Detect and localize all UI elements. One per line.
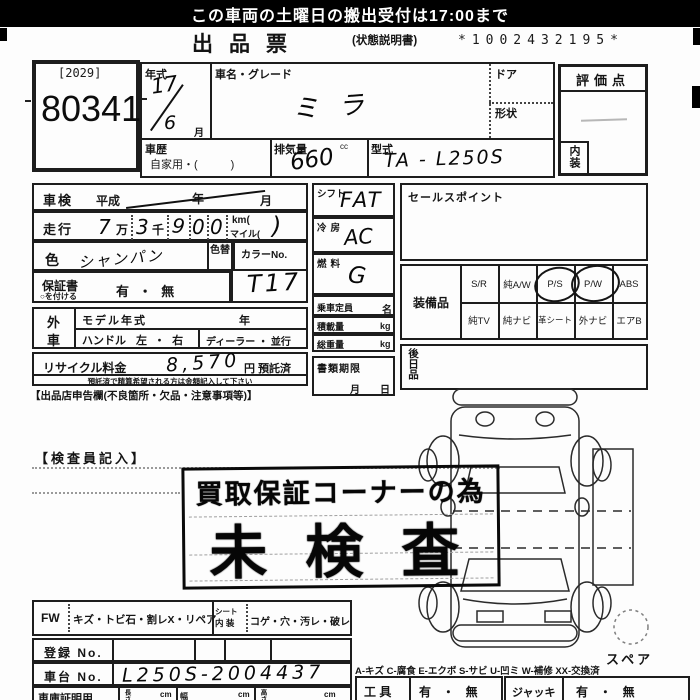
shape-label: 形状 [495, 105, 517, 121]
ac-value: AC [343, 224, 374, 250]
docs-day-label: 日 [380, 381, 390, 396]
equip-aw: 純A/W [498, 266, 536, 302]
mileage-sen: 3 [136, 215, 149, 239]
sales-point-box: セールスポイント [400, 183, 648, 261]
mileage-paren: ) [272, 212, 281, 240]
color-no-label: カラーNo. [241, 246, 287, 261]
docs-deadline-cell: 書類期限 月 日 [312, 356, 395, 396]
divider [489, 64, 491, 138]
warranty-note: ○を付ける [40, 291, 77, 302]
divider [489, 102, 553, 104]
color-label: 色 [45, 250, 59, 270]
jack-box: ジャッキ 有 ・ 無 [504, 676, 690, 700]
mileage-row: 走行 7 万 3 千 9 0 0 km( マイル( ) [32, 211, 308, 241]
mileage-km-label: km( [232, 215, 250, 226]
divider [176, 688, 178, 700]
seat-options: コゲ・穴・汚レ・破レ [250, 613, 350, 628]
tools-box: 工 具 有 ・ 無 [355, 676, 503, 700]
mileage-d1: 9 [171, 213, 187, 238]
color-change-label: 色替 [210, 245, 232, 257]
divider [246, 604, 248, 632]
chassis-label: 車台 No. [44, 668, 103, 685]
serial-number: *1002432195* [458, 33, 624, 48]
model-year-unit: 年 [239, 312, 250, 328]
divider [189, 215, 191, 240]
capacity-label: 乗車定員 [317, 301, 353, 314]
divider [68, 604, 70, 632]
divider [409, 678, 411, 700]
docs-month-label: 月 [350, 381, 360, 396]
garage-row: 車庫証明用 長さ cm 幅 cm 高さ cm [32, 686, 352, 700]
fuel-label: 燃料 [317, 256, 344, 270]
mileage-sen-unit: 千 [152, 221, 164, 238]
model-code-value: TA - L250S [384, 146, 505, 172]
lot-number: 80341 [41, 88, 135, 130]
garage-width-label: 幅 [180, 691, 188, 700]
history-label: 車歴 [145, 141, 167, 157]
divider [118, 688, 120, 700]
stamp-line2: 未検査 [185, 503, 498, 590]
vehicle-name-value: ミラ [291, 83, 385, 126]
handle-options: 左 ・ 右 [136, 332, 185, 348]
seat-label-bottom: 内 装 [215, 617, 234, 629]
auction-sheet: この車両の土曜日の搬出受付は17:00まで 出品票 (状態説明書) *10024… [0, 0, 700, 700]
equip-leather: 革シート [536, 302, 574, 338]
divider [587, 141, 589, 173]
equipment-label: 装備品 [402, 266, 460, 338]
divider [207, 243, 209, 269]
color-value: シャンパン [77, 244, 164, 272]
shaken-label: 車検 [43, 190, 73, 209]
door-label: ドア [495, 66, 517, 82]
load-row: 積載量 kg [312, 316, 395, 334]
mileage-man: 7 [98, 215, 111, 239]
rating-box: 評価点 内装 [558, 64, 648, 176]
mileage-mile-label: マイル( [230, 227, 260, 240]
color-no-value: T17 [246, 268, 302, 299]
divider [561, 141, 587, 143]
vehicle-name-label: 車名・グレード [215, 66, 292, 82]
damage-legend: A-キズ C-腐食 E-エクボ S-サビ U-凹ミ W-補修 XX-交換済 [355, 663, 600, 677]
garage-cm1: cm [160, 690, 172, 699]
chassis-value: L250S-2004437 [122, 661, 325, 687]
divider [367, 138, 369, 176]
divider [562, 678, 564, 700]
fw-label: FW [41, 611, 60, 625]
tick-mark [25, 100, 31, 102]
ac-label: 冷房 [317, 220, 344, 234]
capacity-row: 乗車定員 名 [312, 295, 395, 316]
fuel-cell: 燃料 G [312, 253, 395, 295]
foreign-label-bottom: 車 [47, 330, 60, 349]
history-value: 自家用・( ) [150, 156, 234, 172]
scan-artifact [692, 86, 700, 108]
docs-label: 書類期限 [317, 360, 361, 375]
garage-length-label: 長さ [121, 689, 131, 700]
shift-value: FAT [340, 188, 383, 212]
foreign-label-top: 外 [47, 312, 60, 331]
header-banner: この車両の土曜日の搬出受付は17:00まで [0, 0, 700, 27]
equipment-table: 装備品 S/R 純A/W P/S P/W ABS 純TV 純ナビ 革シート 外ナ… [400, 264, 648, 340]
handle-label: ハンドル [82, 332, 126, 348]
scan-artifact [0, 28, 7, 41]
equip-airbag: エアB [612, 302, 646, 338]
divider [131, 215, 133, 240]
recycle-box: リサイクル料金 8,570 円 預託済 預託済で精算希望される方は金額記入して下… [32, 352, 308, 386]
divider [270, 138, 272, 176]
shift-cell: シフト FAT [312, 183, 395, 217]
mileage-man-unit: 万 [116, 221, 128, 238]
registration-label: 登録 No. [44, 644, 103, 661]
equip-extnavi: 外ナビ [574, 302, 612, 338]
mileage-d3: 0 [210, 215, 223, 239]
equip-tv: 純TV [460, 302, 498, 338]
divider [194, 640, 196, 660]
equip-sr: S/R [460, 266, 498, 302]
rating-label: 評価点 [561, 70, 645, 89]
divider [198, 328, 200, 347]
divider [224, 640, 226, 660]
inspector-label: 【検査員記入】 [35, 448, 147, 467]
lot-box: [2029] 80341 [32, 60, 140, 172]
fw-table: FW キズ・トビ石・割レX・リペア シート 内 装 コゲ・穴・汚レ・破レ [32, 600, 352, 636]
tools-options: 有 ・ 無 [419, 683, 482, 700]
weight-row: 総重量 kg [312, 334, 395, 352]
weight-unit: kg [380, 339, 391, 349]
divider [167, 215, 169, 240]
shaken-month-label: 月 [260, 192, 272, 209]
fuel-value: G [347, 262, 367, 290]
model-year-label: モデル年式 [82, 312, 147, 328]
mileage-label: 走行 [43, 219, 73, 238]
weight-label: 総重量 [317, 338, 344, 351]
mileage-d2: 0 [192, 215, 205, 239]
divider [270, 640, 272, 660]
divider [207, 215, 209, 240]
recycle-value: 8,570 [165, 349, 241, 376]
tools-label: 工 具 [364, 683, 391, 700]
capacity-unit: 名 [382, 301, 392, 316]
warranty-row: 保証書 ○を付ける 有 ・ 無 [32, 271, 231, 303]
divider [254, 688, 256, 700]
garage-height-label: 高さ [257, 689, 267, 700]
sales-point-label: セールスポイント [408, 189, 504, 205]
spare-label: スペア [606, 649, 653, 668]
registration-row: 登録 No. [32, 638, 352, 662]
page-title: 出品票 [192, 28, 303, 58]
page-subtitle: (状態説明書) [352, 32, 417, 48]
scan-artifact [693, 28, 700, 45]
equip-navi: 純ナビ [498, 302, 536, 338]
dotted-rule [32, 492, 180, 494]
fw-options: キズ・トビ石・割レX・リペア [73, 612, 217, 627]
rating-interior-label: 内装 [566, 145, 582, 169]
year-month-label: 月 [194, 124, 204, 139]
faint-mark [581, 118, 627, 122]
divider [226, 215, 228, 240]
garage-label: 車庫証明用 [38, 690, 93, 700]
displacement-unit: cc [340, 142, 348, 151]
displacement-value: 660 [288, 144, 335, 176]
recycle-note: 預託済で精算希望される方は金額記入して下さい [34, 376, 306, 387]
seat-label-top: シート [215, 606, 238, 617]
vehicle-info-table: 年式 17 6 月 車名・グレード ミラ ドア 形状 車歴 自家用・( ) 排気… [140, 62, 555, 178]
later-items-label: 後日品 [406, 348, 421, 380]
color-no-cell: カラーNo. T17 [231, 241, 308, 303]
uninspected-stamp: 買取保証コーナーの為 未検査 [181, 464, 500, 589]
declaration-label: 【出品店申告欄(不良箇所・欠品・注意事項等)】 [30, 388, 258, 403]
garage-cm3: cm [324, 690, 336, 699]
load-unit: kg [380, 321, 391, 331]
jack-label: ジャッキ [512, 684, 555, 700]
divider [112, 664, 114, 684]
garage-cm2: cm [238, 690, 250, 699]
warranty-options: 有 ・ 無 [116, 281, 177, 300]
chassis-row: 車台 No. L250S-2004437 [32, 662, 352, 686]
foreign-car-box: 外 車 モデル年式 年 ハンドル 左 ・ 右 ディーラー ・ 並行 [32, 307, 308, 349]
dealer-options: ディーラー ・ 並行 [206, 333, 291, 348]
year-value-bottom: 6 [164, 112, 176, 134]
lot-code: [2029] [58, 66, 101, 80]
divider [210, 64, 212, 138]
ac-cell: 冷房 AC [312, 217, 395, 253]
shaken-row: 車検 平成 年 月 [32, 183, 308, 211]
divider [74, 328, 306, 330]
jack-options: 有 ・ 無 [576, 683, 639, 700]
divider [561, 90, 645, 92]
divider [112, 640, 114, 660]
banner-text: この車両の土曜日の搬出受付は17:00まで [191, 2, 509, 26]
shaken-era: 平成 [96, 192, 120, 209]
load-label: 積載量 [317, 320, 344, 333]
